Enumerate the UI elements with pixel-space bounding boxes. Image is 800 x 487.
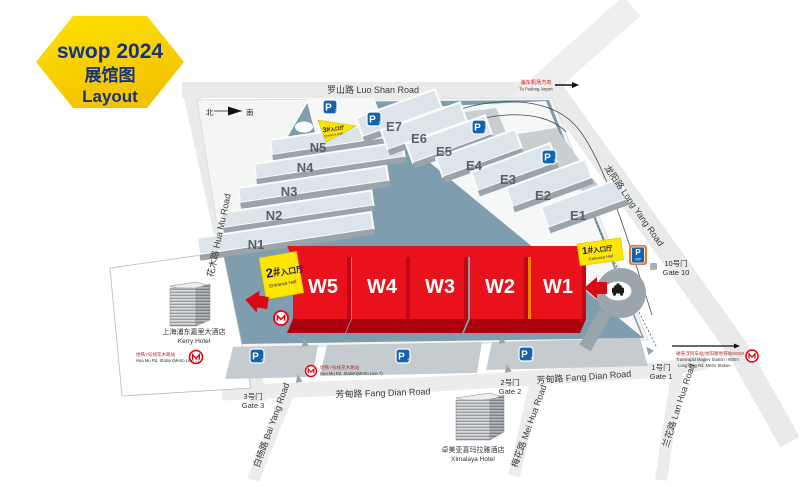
airport-sign-en: To Pudong Airport: [519, 87, 553, 92]
parking-icon-p5: P 5: [396, 349, 411, 363]
svg-text:VIP: VIP: [635, 258, 642, 262]
parking-icon-p2: P 2: [472, 120, 487, 134]
metro-logo-south: [306, 366, 317, 377]
hall-w5-label: W5: [308, 276, 338, 298]
badge-subtitle-zh: 展馆图: [85, 65, 136, 85]
gate1-zh: 1号门: [651, 363, 670, 372]
hall-w2-label: W2: [485, 276, 515, 298]
metro-logo-maglev: [746, 350, 758, 362]
hall-w1-label: W1: [543, 276, 573, 298]
event-badge: swop 2024 展馆图 Layout: [36, 16, 184, 108]
hall-e4-label: E4: [466, 158, 483, 173]
metro-logo-entrance2: [274, 311, 288, 325]
south-metro-en: Hua Mu Rd. Station(Metro Line 7): [320, 371, 383, 376]
parking-lot-p4: [486, 338, 648, 370]
gate10-zh: 10号门: [664, 259, 687, 268]
svg-text:P: P: [521, 350, 528, 361]
kerry-hotel-building: [170, 282, 210, 326]
hall-e6-label: E6: [411, 131, 427, 146]
maglev-en2: LongYang Rd. Metro Station: [678, 363, 731, 368]
maglev-en1: Transrapid Maglev Station / 600m: [676, 357, 739, 362]
svg-text:P: P: [252, 352, 259, 363]
parking-lot-p6: [225, 345, 318, 379]
parking-icon-vip: P VIP: [629, 245, 647, 265]
gate2-en: Gate 2: [499, 387, 522, 396]
parking-icon-p4: P 4: [519, 347, 534, 361]
kerry-metro-en: Hua Mu Rd. Station(Metro Line 7): [136, 358, 199, 363]
svg-text:P: P: [398, 352, 405, 363]
hall-e5-label: E5: [436, 144, 452, 159]
hall-n1-label: N1: [248, 237, 265, 252]
compass-south-label: 南: [246, 107, 254, 117]
parking-icon-p1: P 1: [367, 112, 382, 126]
parking-icon-p7: P 7: [323, 100, 338, 114]
ximalaya-hotel-labels: 卓美亚喜玛拉雅酒店 Ximalaya Hotel: [442, 445, 505, 463]
hall-w3-label: W3: [425, 276, 455, 298]
road-label-luoshan: 罗山路 Luo Shan Road: [327, 84, 419, 95]
hall-n2-label: N2: [266, 208, 283, 223]
gate3-en: Gate 3: [242, 401, 265, 410]
badge-subtitle-en: Layout: [82, 87, 138, 106]
hall-n3-label: N3: [281, 184, 298, 199]
ximalaya-zh: 卓美亚喜玛拉雅酒店: [442, 445, 505, 454]
hall-w4-label: W4: [367, 276, 398, 298]
badge-title: swop 2024: [57, 40, 164, 63]
parking-icon-p6: P 6: [250, 349, 265, 363]
compass-north-label: 北: [206, 108, 214, 117]
airport-arrow-icon: [572, 82, 579, 88]
gate3-zh: 3号门: [243, 392, 262, 401]
south-metro-zh: 地铁7号线花木路站: [320, 364, 360, 371]
svg-text:P: P: [635, 248, 641, 257]
airport-direction-sign: 浦东机场方向 To Pudong Airport: [519, 78, 579, 92]
hall-e3-label: E3: [500, 172, 516, 187]
svg-text:P: P: [474, 123, 481, 134]
hall-n4-label: N4: [297, 160, 314, 175]
venue-map: N5 N4 N3 N2 N1 E7 E6 E5 E4 E3 E: [0, 0, 800, 487]
svg-text:P: P: [369, 115, 376, 126]
kerry-en: Kerry Hotel: [178, 338, 211, 345]
gate10-marker: [650, 263, 657, 270]
svg-text:P: P: [325, 103, 332, 114]
hall-n5-label: N5: [310, 140, 327, 155]
ximalaya-en: Ximalaya Hotel: [451, 456, 495, 463]
ximalaya-hotel-building: [456, 393, 504, 440]
hall-e7-label: E7: [386, 119, 402, 134]
hall-e2-label: E2: [535, 188, 551, 203]
hall-e1-label: E1: [570, 208, 586, 223]
gate1-en: Gate 1: [650, 372, 673, 381]
kerry-metro-zh: 地铁7号线花木路站: [136, 351, 176, 358]
gate10-en: Gate 10: [663, 268, 690, 277]
parking-icon-p3: P 3: [542, 150, 557, 164]
kerry-zh: 上海浦东嘉里大酒店: [163, 327, 226, 336]
central-oval: [295, 122, 313, 133]
gate1-arrow-icon: [643, 344, 654, 355]
west-halls: W5 W4 W3 W2 W1: [287, 246, 594, 333]
maglev-zh: 磁悬浮列车站/龙阳路地铁站600M: [676, 350, 744, 357]
svg-text:P: P: [544, 153, 551, 164]
gate2-zh: 2号门: [500, 378, 519, 387]
airport-sign-zh: 浦东机场方向: [520, 78, 551, 86]
